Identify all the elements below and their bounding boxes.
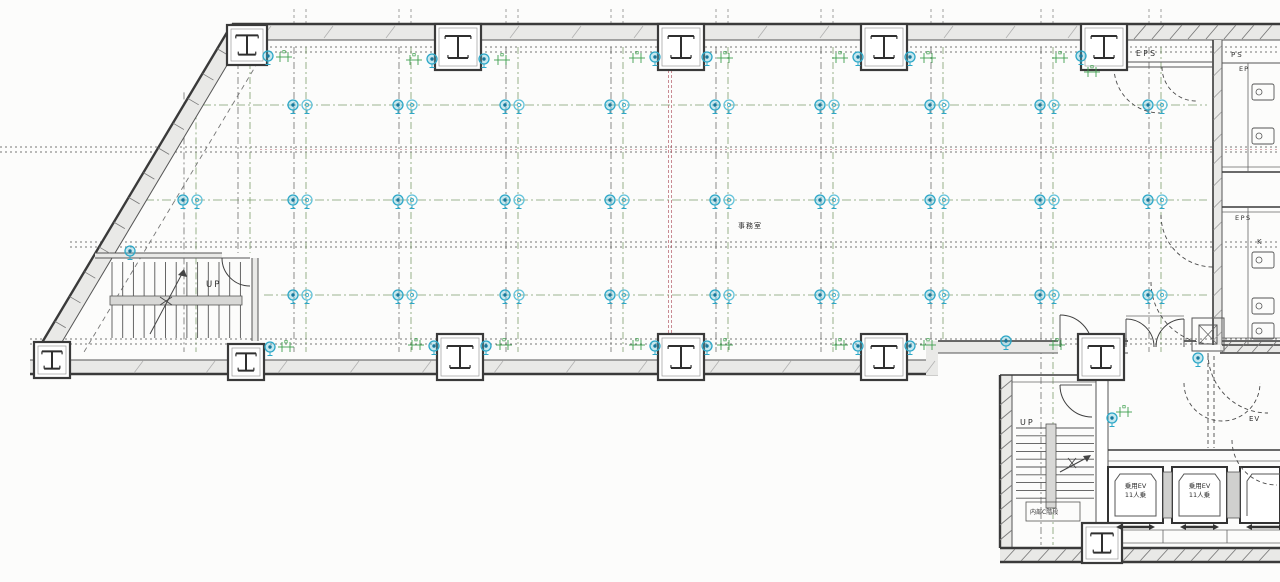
sprinkler-icon [192,195,202,209]
pipe-annotation-icon [278,341,294,353]
sprinkler-icon [815,290,825,304]
sprinkler-icon [619,290,629,304]
doors [222,67,1277,485]
annex-stairs-label: 内部C階段 [1030,507,1058,516]
fixture-icon [1252,84,1274,100]
pipe-annotation-icon [496,339,512,351]
column [658,334,704,380]
sprinkler-icon [1157,100,1167,114]
sprinkler-icon [829,290,839,304]
fixture-icon [1252,128,1274,144]
sprinkler-icon [288,195,298,209]
sprinkler-icon [1157,195,1167,209]
sprinkler-icon [724,290,734,304]
sprinkler-icon [829,195,839,209]
pipe-annotation-icon [629,52,645,64]
elevator-1-label-line2: 11人乗 [1110,491,1161,500]
sprinkler-icon [178,195,188,209]
ep-label: EP [1239,65,1249,73]
sprinkler-icon [1049,195,1059,209]
sprinkler-icon [407,290,417,304]
sprinkler-icon [265,342,275,356]
ps-label: PS [1231,51,1244,59]
pipe-annotation-icon [494,54,510,66]
pipe-annotation-icon [1052,52,1068,64]
column [1082,523,1122,563]
sprinkler-icon [1143,290,1153,304]
fixture-icon [1252,252,1274,268]
pipe-annotation-icon [717,52,733,64]
sprinkler-icon [302,290,312,304]
eps-label-mid: EPS [1235,214,1252,222]
sprinkler-icon [619,100,629,114]
floor-plan-svg [0,0,1280,582]
sprinkler-icon [1035,290,1045,304]
sprinkler-icon [1193,353,1203,367]
elevator-1-label: 乗用EV 11人乗 [1110,482,1161,499]
elevator-2-label-line2: 11人乗 [1174,491,1225,500]
sprinkler-icon [1035,100,1045,114]
sprinkler-icon [514,195,524,209]
walls [30,24,1280,375]
pipe-annotation-icon [276,51,292,63]
sprinkler-icon [724,100,734,114]
sprinkler-icon [925,100,935,114]
sprinkler-icon [710,195,720,209]
sprinkler-icon [393,100,403,114]
column [861,24,907,70]
sprinkler-icon [925,290,935,304]
sprinkler-icon [393,290,403,304]
sprinkler-icon [829,100,839,114]
sprinkler-icon [925,195,935,209]
column [228,344,264,380]
sprinkler-icon [710,100,720,114]
sprinkler-icon [815,100,825,114]
sprinkler-icon [500,290,510,304]
sprinkler-icon [500,195,510,209]
sprinkler-icon [605,100,615,114]
room-label-office: 事務室 [738,221,762,231]
elevator-2-label-line1: 乗用EV [1174,482,1225,491]
up-label-main-stairs: UP [206,280,221,290]
sprinkler-icon [939,100,949,114]
column [435,24,481,70]
fixture-icon [1252,298,1274,314]
column [1081,24,1127,70]
pipe-annotation-icon [1116,406,1132,418]
pipe-annotation-icon [920,52,936,64]
column [227,25,267,65]
ev-hall-label: EV [1249,415,1260,423]
sprinkler-icon [605,195,615,209]
elevator-2-label: 乗用EV 11人乗 [1174,482,1225,499]
sprinkler-icon [393,195,403,209]
sprinkler-icon [288,290,298,304]
sprinkler-icon [514,100,524,114]
pipe-annotation-icon [832,52,848,64]
sprinkler-icon [939,290,949,304]
pipe-annotation-icon [406,54,422,66]
annex-walls [1000,375,1280,562]
floor-plan-canvas: 事務室 EPS PS EP EPS K UP UP 内部C階段 乗用EV 11人… [0,0,1280,582]
sprinkler-icon [1049,290,1059,304]
elevator-3-shaft-partial [1240,467,1280,523]
sprinkler-icon [302,100,312,114]
sprinkler-icon [407,195,417,209]
sprinkler-icon [939,195,949,209]
sprinkler-icon [288,100,298,114]
up-label-annex-stairs: UP [1020,418,1035,427]
column [437,334,483,380]
column [861,334,907,380]
column [658,24,704,70]
sprinkler-icon [407,100,417,114]
column [1078,334,1124,380]
sprinkler-icon [500,100,510,114]
sprinkler-icon [1049,100,1059,114]
column [34,342,70,378]
sprinkler-icon [1035,195,1045,209]
sprinkler-icon [514,290,524,304]
sprinkler-icon [302,195,312,209]
sprinkler-icon [1143,195,1153,209]
sprinkler-icon [619,195,629,209]
sprinkler-icon [724,195,734,209]
sprinkler-icon [1157,290,1167,304]
sprinkler-icon [605,290,615,304]
fixture-icon [1252,323,1274,339]
eps-label-top: EPS [1136,49,1158,58]
elevator-1-label-line1: 乗用EV [1110,482,1161,491]
sprinkler-icon [815,195,825,209]
k-label: K [1257,238,1262,246]
sprinkler-icon [1143,100,1153,114]
sprinkler-icon [710,290,720,304]
